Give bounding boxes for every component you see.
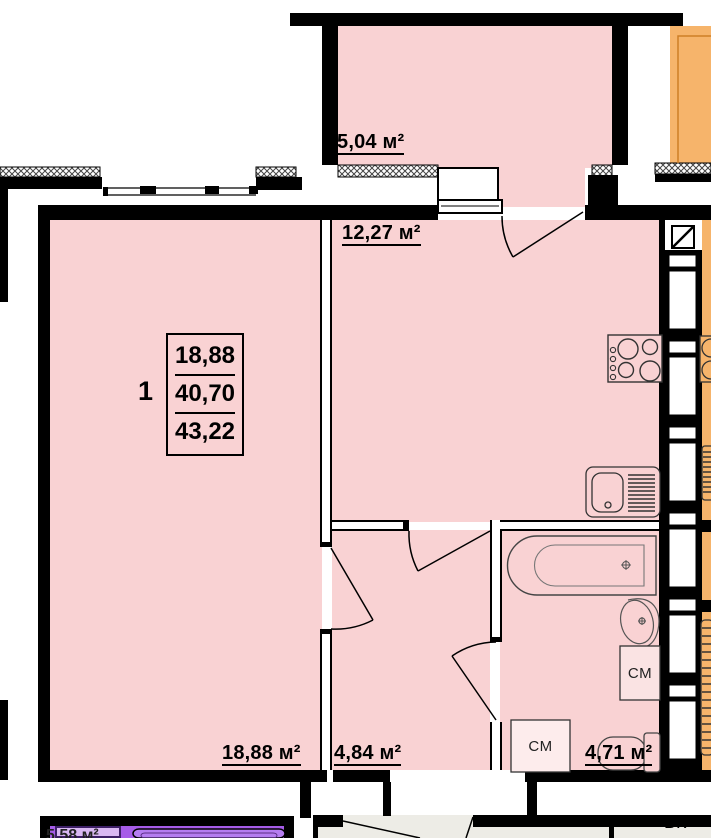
hallway-area-label: 4,84 м²: [334, 742, 401, 765]
vent-symbol-icon: [672, 226, 694, 248]
neighbor-area-label: 5,58 м²: [46, 827, 132, 838]
bathtub: [508, 536, 657, 595]
hatched-walls: [0, 163, 711, 177]
neighbor-balcony-floor: [670, 26, 711, 163]
stove: [608, 335, 662, 382]
neighbor-purple-tub: [133, 829, 285, 838]
plan-drawing: [0, 0, 711, 838]
area-value: 40,70: [168, 376, 242, 414]
bathroom-area-label: 4,71 м²: [585, 742, 652, 765]
balcony-window: [438, 168, 502, 213]
apartment-info-box: 18,88 40,70 43,22: [166, 333, 244, 456]
total-area-value: 43,22: [168, 414, 242, 450]
living-room-floor: [50, 220, 322, 770]
floor-plan: 5,04 м² 12,27 м² 18,88 м² 4,84 м² 4,71 м…: [0, 0, 711, 838]
hallway-floor: [332, 530, 490, 770]
living-room-area-label: 18,88 м²: [222, 742, 301, 765]
vent-shaft: [663, 250, 702, 773]
balcony-door-strip: [498, 168, 585, 207]
washing-machine-1-label: СМ: [620, 646, 660, 700]
balcony-area-label: 5,04 м²: [337, 131, 404, 154]
window-band: [103, 186, 258, 196]
kitchen-sink: [586, 467, 660, 517]
rooms-count: 1: [138, 376, 153, 407]
living-area-value: 18,88: [168, 338, 242, 376]
kitchen-area-label: 12,27 м²: [342, 222, 421, 245]
washing-machine-2-label: СМ: [511, 720, 570, 772]
corridor-riser-label: ВК: [664, 812, 687, 833]
